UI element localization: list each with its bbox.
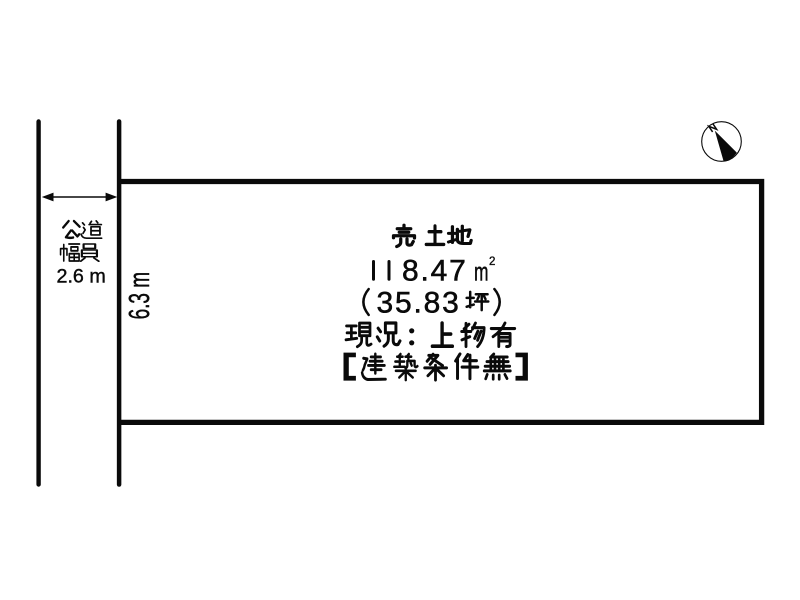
svg-text:6.3 m: 6.3 m [124, 272, 156, 319]
svg-text:8.47: 8.47 [402, 255, 468, 288]
svg-text:m: m [474, 257, 489, 287]
svg-text:2.6 m: 2.6 m [57, 266, 106, 288]
svg-text:2: 2 [489, 256, 495, 268]
svg-text:35.83: 35.83 [377, 287, 461, 320]
